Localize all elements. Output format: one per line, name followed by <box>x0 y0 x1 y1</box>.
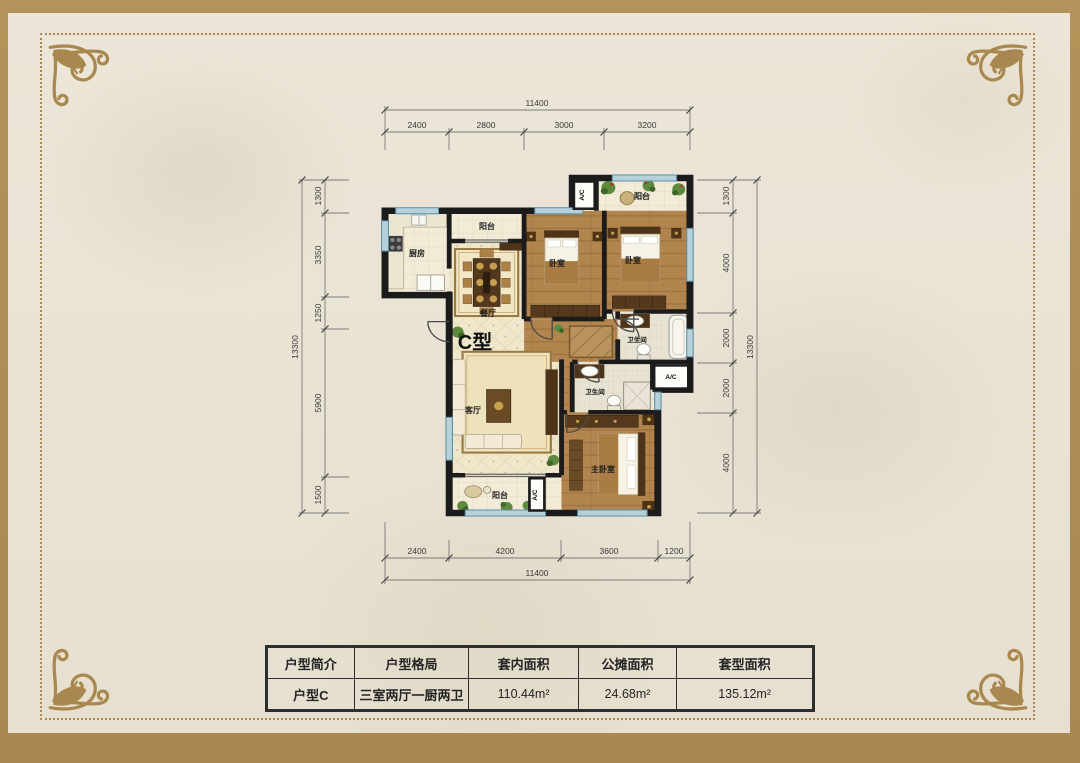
dim-label: 2000 <box>721 328 731 347</box>
dimension-left: 13300 1300 3350 1250 5900 1500 <box>290 177 349 517</box>
dim-label: 13300 <box>745 335 755 359</box>
dim-label: 2800 <box>477 120 496 130</box>
header-inner-area: 套内面积 <box>469 647 578 679</box>
brochure-page: { "page": { "frame_color": "#ad8c54", "p… <box>0 0 1080 763</box>
header-unit-intro: 户型简介 <box>267 647 355 679</box>
corner-flourish-icon <box>958 637 1030 715</box>
corner-flourish-icon <box>46 40 118 118</box>
dim-label: 1500 <box>313 485 323 504</box>
corner-flourish-icon <box>958 40 1030 118</box>
table-header-row: 户型简介 户型格局 套内面积 公摊面积 套型面积 <box>267 647 814 679</box>
dim-label: 3000 <box>555 120 574 130</box>
room-label-balcony-bottom: 阳台 <box>492 490 508 500</box>
floor-plan-figure: 11400 2400 2800 3000 3200 11400 2400 420… <box>285 92 775 597</box>
header-unit-layout: 户型格局 <box>354 647 469 679</box>
unit-type-label: C型 <box>458 331 492 354</box>
dimension-bottom: 11400 2400 4200 3600 1200 <box>382 522 694 584</box>
dining-furniture <box>455 242 522 316</box>
dim-label: 3600 <box>600 546 619 556</box>
dim-label: 1300 <box>721 186 731 205</box>
dim-label: 2400 <box>408 120 427 130</box>
cell-unit-name: 户型C <box>267 679 355 711</box>
dimension-right: 13300 1300 4000 2000 2000 4000 <box>697 177 761 517</box>
area-table: 户型简介 户型格局 套内面积 公摊面积 套型面积 户型C 三室两厅一厨两卫 11… <box>265 645 815 712</box>
ac-label: A/C <box>665 374 677 381</box>
cell-inner-area: 110.44m² <box>469 679 578 711</box>
room-label-bath1: 卫生间 <box>627 335 647 344</box>
dim-label: 3350 <box>313 245 323 264</box>
dim-label: 4000 <box>721 453 731 472</box>
dim-label: 11400 <box>525 98 548 108</box>
header-shared-area: 公摊面积 <box>578 647 676 679</box>
dim-label: 2400 <box>408 546 427 556</box>
room-label-bedroom1: 卧室 <box>549 258 565 268</box>
dim-label: 1300 <box>313 186 323 205</box>
dim-label: 13300 <box>290 335 300 359</box>
floor-plan <box>382 175 694 516</box>
dim-label: 11400 <box>525 568 548 578</box>
header-total-area: 套型面积 <box>677 647 814 679</box>
room-label-kitchen: 厨房 <box>409 248 425 258</box>
dim-label: 5900 <box>313 393 323 412</box>
ac-label: A/C <box>532 489 539 501</box>
room-label-master: 主卧室 <box>591 464 615 474</box>
dim-label: 3200 <box>638 120 657 130</box>
corner-flourish-icon <box>46 637 118 715</box>
room-label-living: 客厅 <box>464 405 481 415</box>
dim-label: 4200 <box>496 546 515 556</box>
room-label-bedroom2: 卧室 <box>625 255 641 265</box>
ac-label: A/C <box>579 189 586 201</box>
cell-total-area: 135.12m² <box>677 679 814 711</box>
dim-label: 4000 <box>721 253 731 272</box>
room-label-dining: 餐厅 <box>479 308 496 318</box>
dim-label: 2000 <box>721 378 731 397</box>
cell-shared-area: 24.68m² <box>578 679 676 711</box>
room-label-bath2: 卫生间 <box>585 387 605 396</box>
table-data-row: 户型C 三室两厅一厨两卫 110.44m² 24.68m² 135.12m² <box>267 679 814 711</box>
dimension-top: 11400 2400 2800 3000 3200 <box>382 98 694 150</box>
cell-unit-layout: 三室两厅一厨两卫 <box>354 679 469 711</box>
dim-label: 1250 <box>313 303 323 322</box>
dim-label: 1200 <box>665 546 684 556</box>
room-label-balcony-right: 阳台 <box>634 191 650 201</box>
room-label-balcony-top: 阳台 <box>479 221 495 231</box>
